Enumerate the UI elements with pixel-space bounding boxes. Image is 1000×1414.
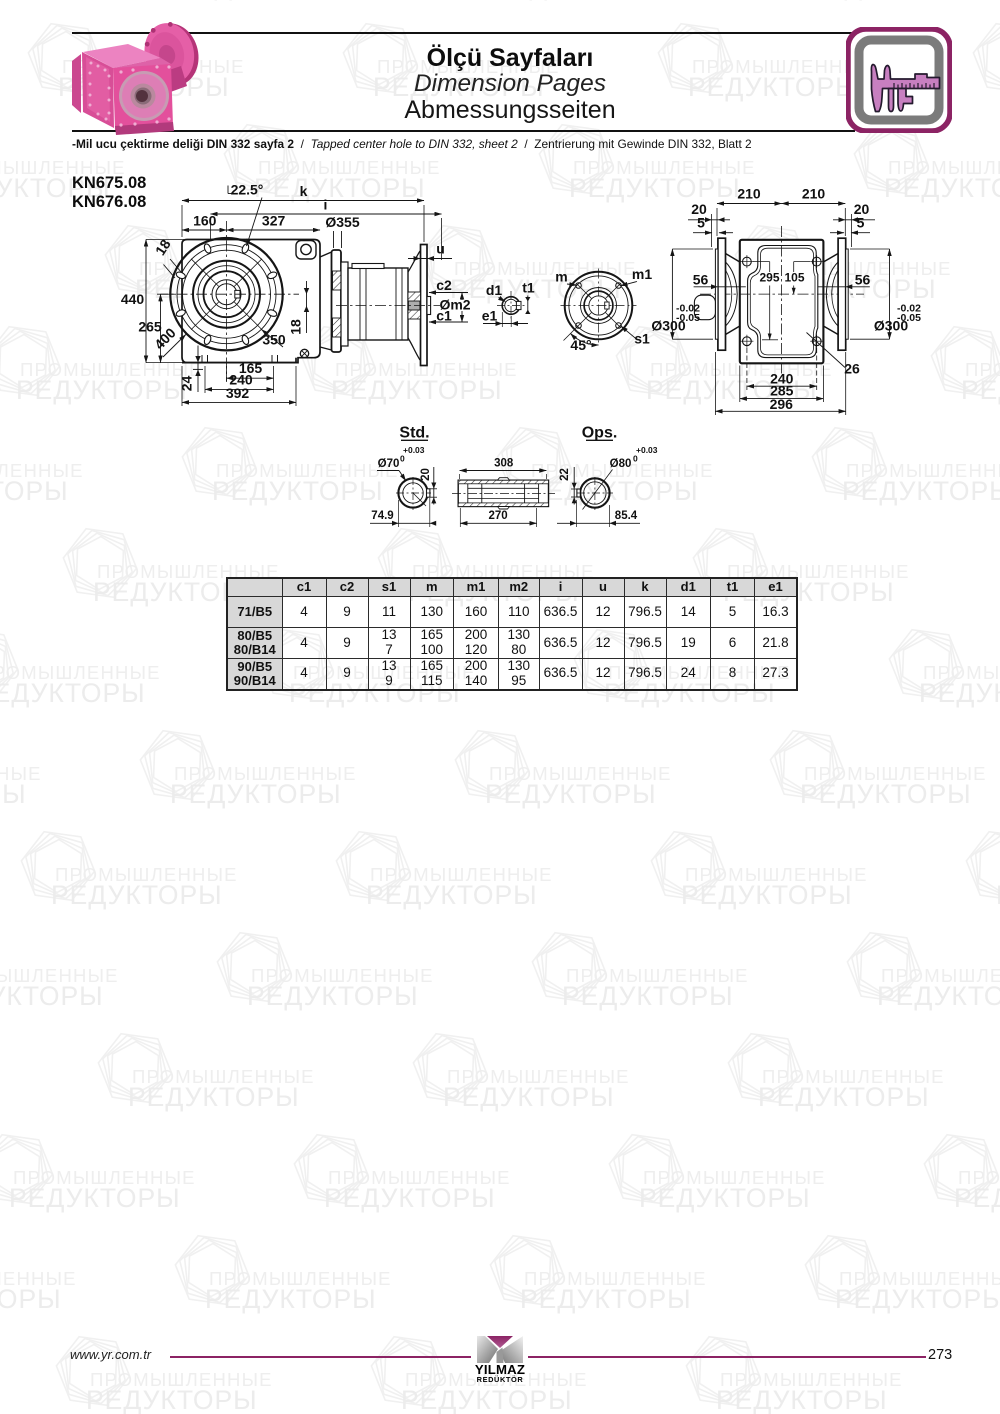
svg-text:0: 0 <box>400 454 405 464</box>
svg-text:-0.05: -0.05 <box>676 312 700 324</box>
svg-text:160: 160 <box>193 212 217 228</box>
svg-text:+0.03: +0.03 <box>403 445 425 455</box>
svg-text:265: 265 <box>138 319 162 335</box>
svg-text:45°: 45° <box>570 337 591 353</box>
svg-text:+0.03: +0.03 <box>636 445 658 455</box>
svg-text:Ø70: Ø70 <box>378 458 400 470</box>
svg-text:22.5°: 22.5° <box>231 182 264 198</box>
svg-text:s1: s1 <box>634 331 650 347</box>
svg-text:0: 0 <box>633 454 638 464</box>
svg-text:210: 210 <box>737 186 761 202</box>
svg-text:85.4: 85.4 <box>615 510 638 522</box>
svg-text:Std.: Std. <box>399 425 429 442</box>
svg-text:Øm2: Øm2 <box>439 297 470 313</box>
svg-text:e1: e1 <box>482 308 498 324</box>
svg-text:-0.05: -0.05 <box>897 312 921 324</box>
svg-text:26: 26 <box>844 361 860 377</box>
svg-text:u: u <box>436 241 445 257</box>
svg-text:392: 392 <box>226 385 250 401</box>
svg-text:270: 270 <box>489 510 508 522</box>
svg-text:5: 5 <box>857 214 865 230</box>
svg-text:20: 20 <box>420 468 432 481</box>
svg-text:440: 440 <box>121 291 145 307</box>
svg-text:5: 5 <box>697 214 705 230</box>
svg-text:105: 105 <box>784 271 804 285</box>
svg-text:56: 56 <box>693 271 709 287</box>
svg-text:308: 308 <box>494 458 514 470</box>
svg-text:Ops.: Ops. <box>582 425 618 442</box>
svg-text:56: 56 <box>855 271 871 287</box>
svg-text:d1: d1 <box>486 282 503 298</box>
svg-text:m1: m1 <box>632 266 652 282</box>
svg-text:74.9: 74.9 <box>371 510 393 522</box>
svg-text:24: 24 <box>179 376 195 392</box>
svg-text:Ø355: Ø355 <box>325 214 359 230</box>
svg-text:22: 22 <box>559 468 571 481</box>
svg-text:295: 295 <box>759 271 779 285</box>
svg-text:REDÜKTÖR: REDÜKTÖR <box>477 1375 524 1384</box>
svg-text:m: m <box>555 269 567 285</box>
svg-text:18: 18 <box>288 319 304 335</box>
svg-text:c2: c2 <box>436 277 452 293</box>
svg-text:t1: t1 <box>522 280 535 296</box>
svg-text:296: 296 <box>770 396 794 412</box>
svg-text:Ø80: Ø80 <box>610 458 632 470</box>
svg-text:k: k <box>300 183 308 199</box>
svg-text:210: 210 <box>802 186 826 202</box>
svg-text:i: i <box>324 197 328 213</box>
svg-text:327: 327 <box>262 212 286 228</box>
